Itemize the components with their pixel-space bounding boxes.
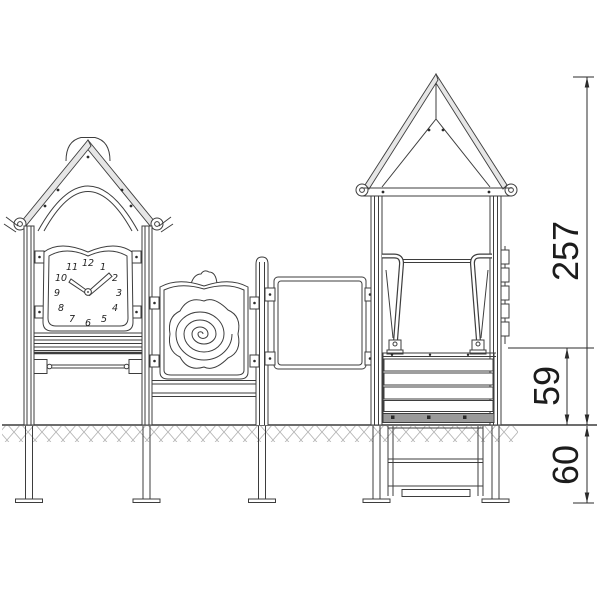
house-post-right [142,226,152,425]
bridge-panel [265,277,375,369]
roof-board-right [85,140,155,227]
clock-numeral-4: 4 [112,303,118,314]
capped-post [256,257,268,425]
dimension-label-60: 60 [545,445,586,485]
clock-numeral-2: 2 [112,273,118,284]
roof-underside [382,119,490,187]
eave-scroll-left [356,184,368,196]
clock-numeral-12: 12 [82,258,94,269]
clock-numeral-8: 8 [58,303,64,314]
clock-numeral-9: 9 [54,288,60,299]
clock-numeral-10: 10 [55,273,67,284]
dimension-label-257: 257 [545,221,586,281]
dimension-label-59: 59 [526,366,567,406]
spiral-panel [160,271,248,379]
clock-house: 12 1 2 3 4 5 6 7 8 9 10 11 [4,138,173,426]
clock-numeral-7: 7 [69,314,75,325]
spiral-section [150,257,268,425]
dimensions: 257 59 60 [508,77,594,503]
eave-scroll-right [505,184,517,196]
dimension-foundation-depth: 60 [545,426,594,503]
clock-numeral-6: 6 [85,318,91,329]
roof-board-left [365,74,438,189]
clock-panel: 12 1 2 3 4 5 6 7 8 9 10 11 [43,246,133,331]
handrail-foot-right [470,340,486,354]
clock-numeral-5: 5 [101,314,107,325]
spiral-lower-rails [152,381,256,397]
platform-steps [382,353,496,423]
panel-top-knob [191,271,217,284]
ground [2,425,597,442]
roof-board-left [21,140,91,227]
tower-post-left [371,196,382,425]
handrail-loops [382,256,492,354]
tower [356,74,517,425]
arch-inner [44,192,132,232]
roof-board-right [434,74,507,189]
tower-roof [356,74,517,196]
dimension-platform-height: 59 [508,348,594,425]
handrail-foot-left [387,340,403,354]
clock-numeral-3: 3 [116,288,122,299]
screenshot-canvas: 12 1 2 3 4 5 6 7 8 9 10 11 [0,0,600,600]
house-lower-rail [34,360,142,374]
house-slat-band [34,333,142,353]
clock-numeral-11: 11 [66,262,78,273]
side-clamp-stack [501,246,509,344]
playground-elevation-drawing: 12 1 2 3 4 5 6 7 8 9 10 11 [0,0,600,600]
house-post-left [24,226,34,425]
clock-numeral-1: 1 [100,262,106,273]
